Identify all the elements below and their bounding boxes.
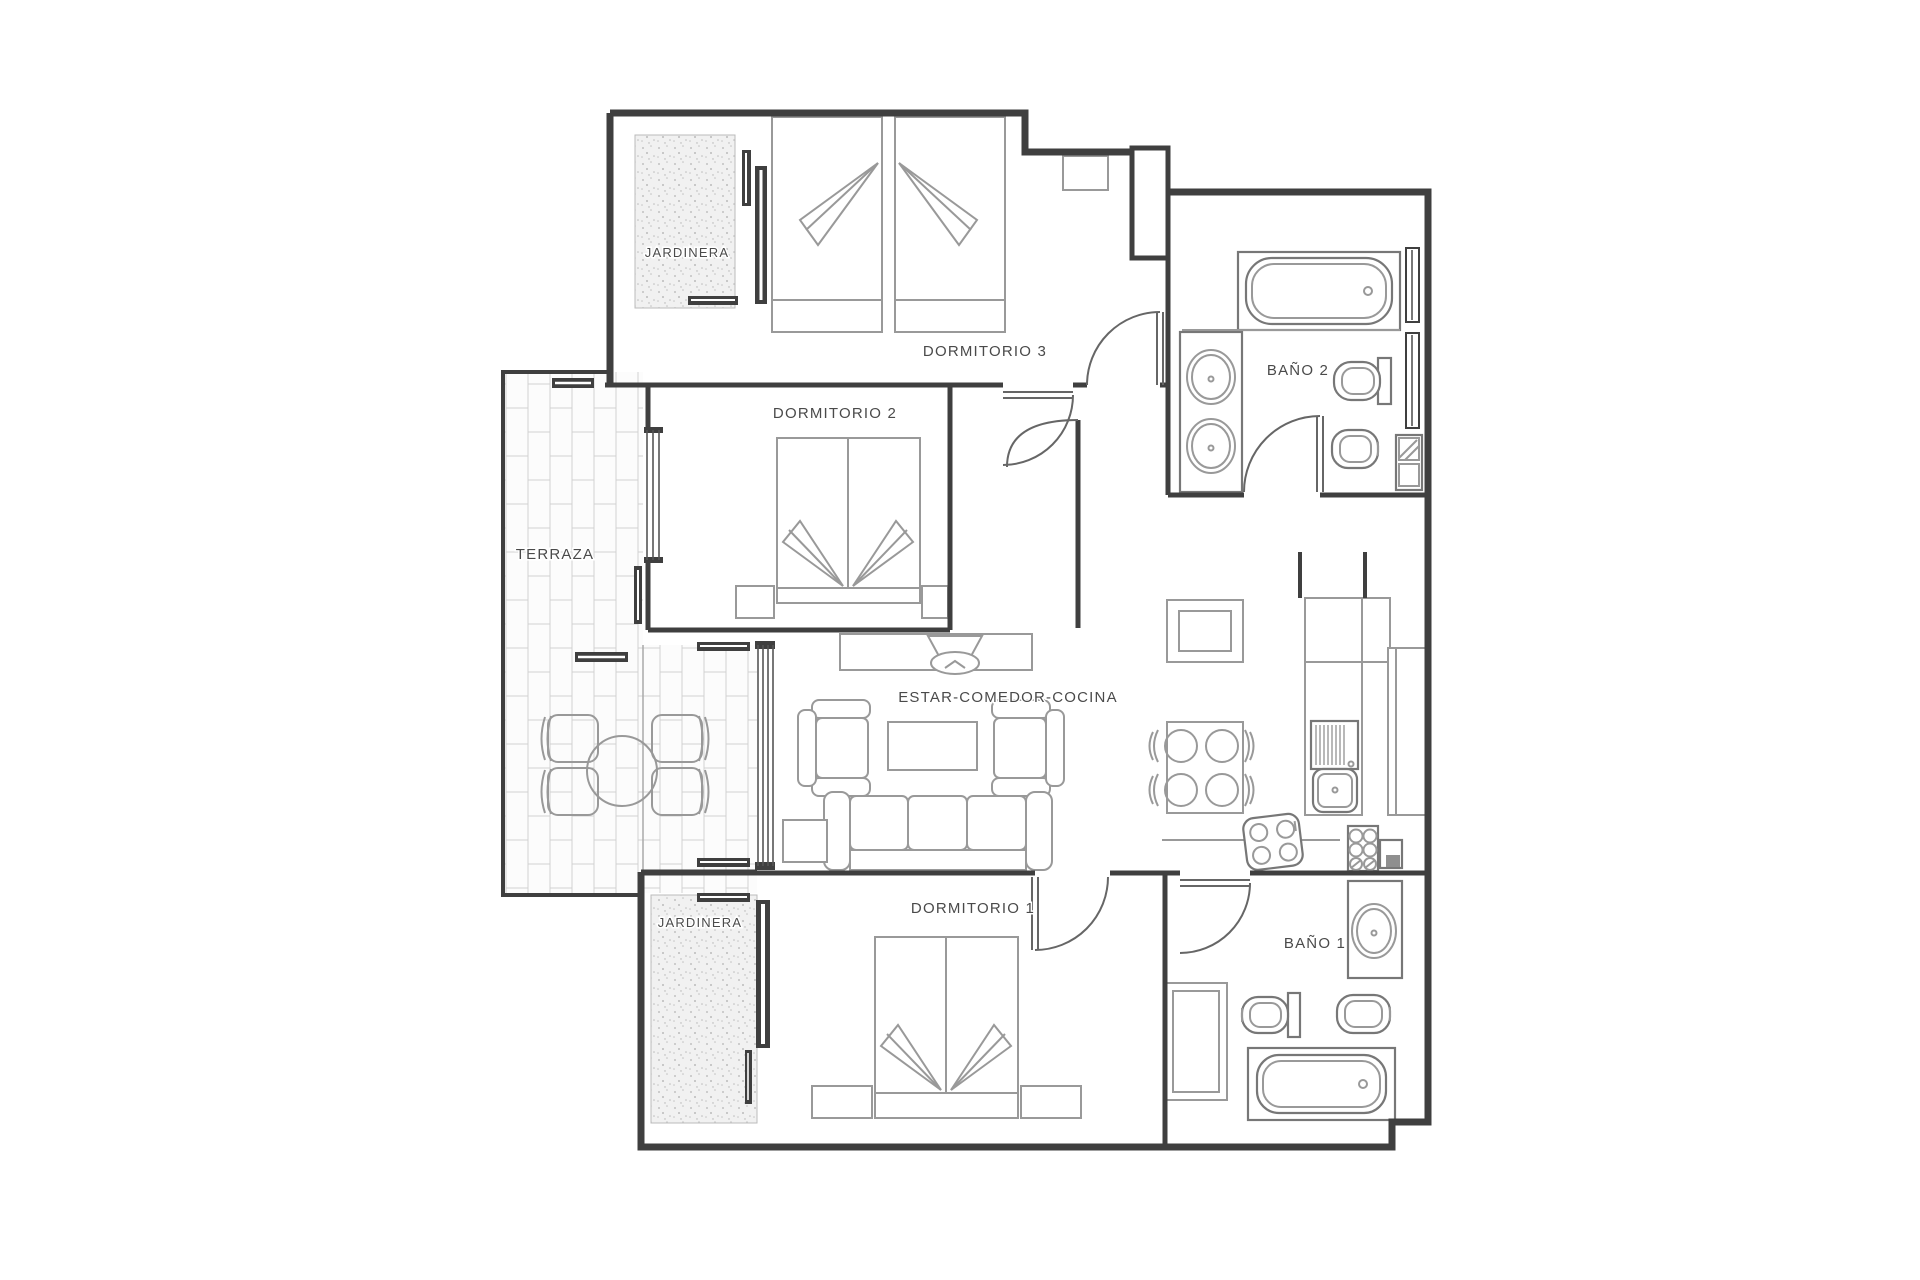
bed-dormitorio2 <box>777 438 920 603</box>
nightstand-dormitorio3 <box>1063 156 1108 190</box>
door-dormitorio3 <box>1087 312 1163 385</box>
terraza-floor-tiles <box>503 372 757 895</box>
washer-bano2 <box>1396 435 1422 490</box>
sink-bano1 <box>1348 881 1402 978</box>
sofa <box>824 792 1052 870</box>
door-hall-living <box>1003 392 1073 465</box>
floor-plan-canvas: JARDINERA DORMITORIO 3 BAÑO 2 DORMITORIO… <box>0 0 1920 1280</box>
label-jardinera-top: JARDINERA <box>645 245 729 260</box>
toilet-bano2 <box>1334 358 1391 404</box>
bed-dormitorio1 <box>875 937 1018 1118</box>
bidet-bano1 <box>1337 995 1390 1033</box>
sink-counter-bano2 <box>1180 332 1242 492</box>
label-dormitorio-3: DORMITORIO 3 <box>923 343 1047 360</box>
kitchen-oven-symbol <box>1348 826 1402 871</box>
kitchen-hob <box>1242 813 1304 871</box>
label-dormitorio-2: DORMITORIO 2 <box>773 405 897 422</box>
bathtub-bano1 <box>1248 1048 1395 1120</box>
hall-cabinet <box>1167 600 1243 662</box>
dining-table <box>1167 722 1243 813</box>
label-dormitorio-1: DORMITORIO 1 <box>911 900 1035 917</box>
label-jardinera-bottom: JARDINERA <box>658 915 742 930</box>
coffee-table <box>888 722 977 770</box>
closet-dormitorio1 <box>1165 983 1227 1100</box>
bed-dormitorio3-left <box>772 117 882 332</box>
bathtub-bano2 <box>1238 252 1400 330</box>
nightstand-dormitorio2-right <box>922 586 948 618</box>
bidet-bano2 <box>1332 430 1378 468</box>
kitchen-sink <box>1311 721 1358 812</box>
side-table <box>783 820 827 862</box>
door-bano2 <box>1244 416 1323 492</box>
label-estar-comedor-cocina: ESTAR-COMEDOR-COCINA <box>898 689 1118 706</box>
door-dormitorio1 <box>1032 877 1108 950</box>
nightstand-dormitorio2-left <box>736 586 774 618</box>
planter-top <box>635 135 735 308</box>
door-hall-fin <box>1007 420 1078 467</box>
nightstand-dormitorio1-left <box>812 1086 872 1118</box>
armchair-right <box>992 700 1064 796</box>
nightstand-dormitorio1-right <box>1021 1086 1081 1118</box>
floor-plan-page: JARDINERA DORMITORIO 3 BAÑO 2 DORMITORIO… <box>0 0 1920 1280</box>
bed-dormitorio3-right <box>895 117 1005 332</box>
label-bano-2: BAÑO 2 <box>1267 362 1329 379</box>
armchair-left <box>798 700 870 796</box>
door-bano1 <box>1180 880 1250 953</box>
label-bano-1: BAÑO 1 <box>1284 935 1346 952</box>
toilet-bano1 <box>1242 993 1300 1037</box>
label-terraza: TERRAZA <box>516 546 594 563</box>
